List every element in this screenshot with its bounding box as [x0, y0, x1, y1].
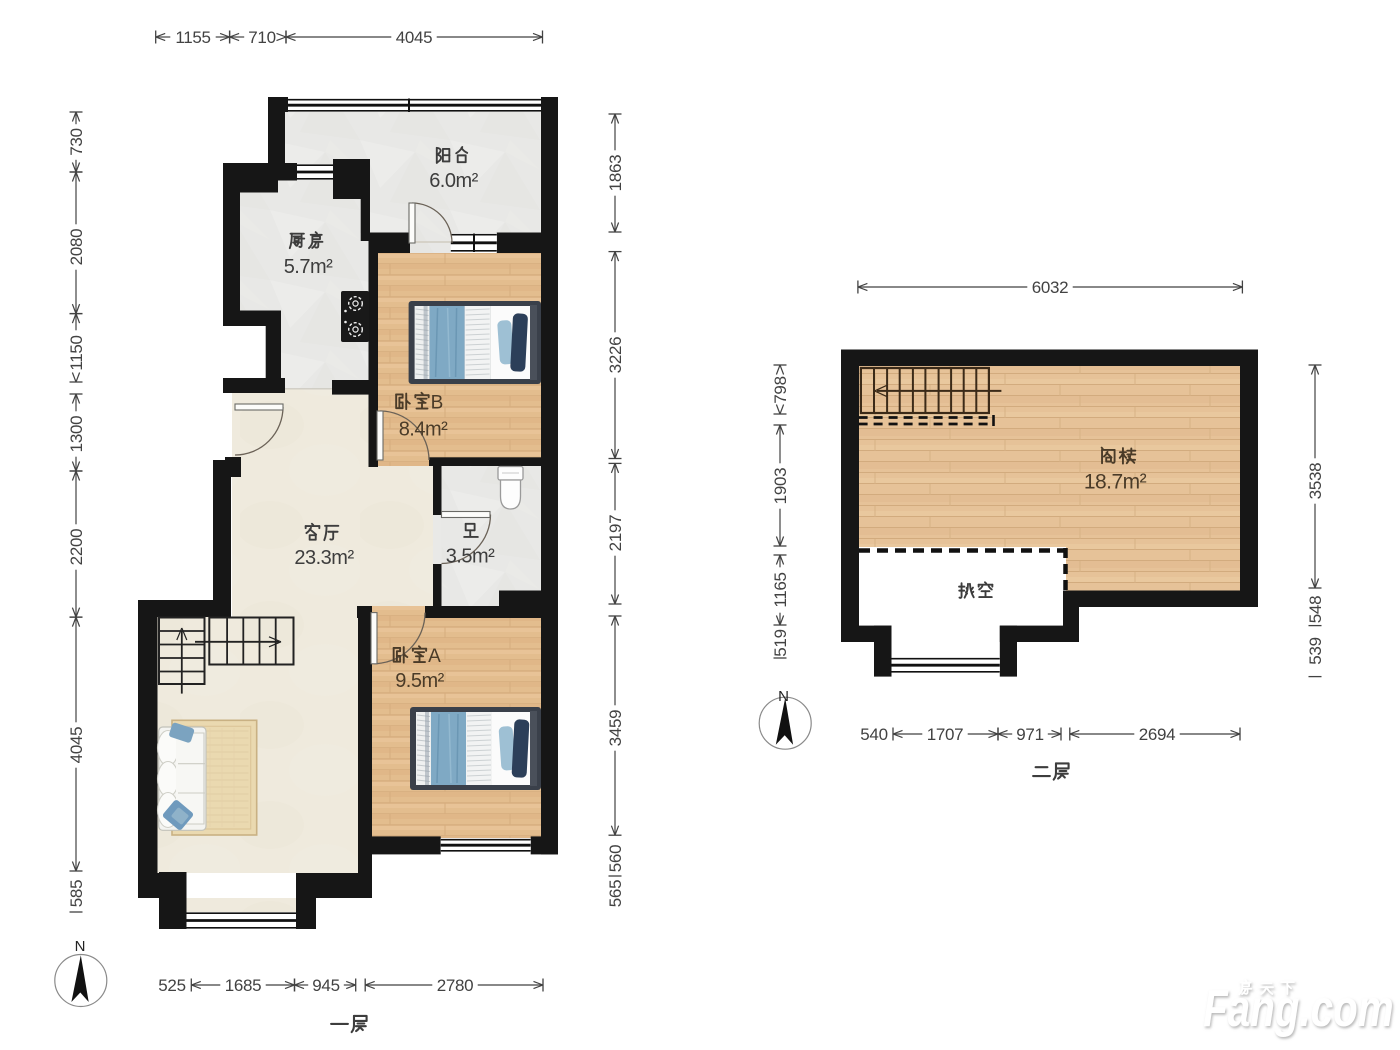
- svg-text:710: 710: [248, 28, 275, 47]
- svg-text:1150: 1150: [67, 335, 86, 370]
- svg-text:3538: 3538: [1306, 463, 1325, 500]
- svg-text:2197: 2197: [606, 515, 625, 552]
- svg-text:539: 539: [1306, 637, 1325, 664]
- svg-text:N: N: [778, 688, 789, 705]
- svg-text:18.7m²: 18.7m²: [1084, 471, 1147, 494]
- svg-text:2694: 2694: [1139, 725, 1176, 744]
- svg-text:6.0m²: 6.0m²: [429, 170, 478, 192]
- svg-text:1903: 1903: [771, 468, 790, 505]
- svg-text:N: N: [75, 938, 86, 955]
- svg-text:9.5m²: 9.5m²: [395, 670, 444, 692]
- svg-text:4045: 4045: [396, 28, 433, 47]
- svg-text:8.4m²: 8.4m²: [399, 419, 448, 441]
- svg-text:2200: 2200: [67, 529, 86, 566]
- svg-text:5.7m²: 5.7m²: [284, 256, 333, 278]
- svg-text:971: 971: [1016, 725, 1043, 744]
- svg-text:1863: 1863: [606, 155, 625, 192]
- svg-text:585: 585: [67, 880, 86, 907]
- svg-text:798: 798: [771, 376, 790, 403]
- svg-text:525: 525: [158, 976, 185, 995]
- svg-text:560: 560: [606, 845, 625, 872]
- svg-text:945: 945: [312, 976, 339, 995]
- svg-text:A: A: [428, 646, 441, 667]
- svg-text:1707: 1707: [927, 725, 964, 744]
- svg-text:548: 548: [1306, 596, 1325, 623]
- svg-text:540: 540: [860, 725, 887, 744]
- svg-text:3459: 3459: [606, 710, 625, 747]
- svg-text:B: B: [431, 393, 444, 414]
- svg-text:565: 565: [606, 880, 625, 907]
- svg-text:Fang.com: Fang.com: [1203, 979, 1393, 1037]
- svg-text:2080: 2080: [67, 229, 86, 266]
- svg-text:4045: 4045: [67, 727, 86, 764]
- svg-text:730: 730: [67, 128, 86, 155]
- svg-text:6032: 6032: [1032, 278, 1069, 297]
- svg-text:2780: 2780: [437, 976, 474, 995]
- svg-text:1685: 1685: [225, 976, 262, 995]
- svg-text:1155: 1155: [175, 28, 210, 47]
- svg-text:3226: 3226: [606, 337, 625, 374]
- svg-text:1300: 1300: [67, 416, 86, 453]
- svg-text:519: 519: [771, 629, 790, 656]
- svg-text:3.5m²: 3.5m²: [446, 546, 495, 568]
- svg-text:1165: 1165: [771, 572, 790, 607]
- svg-text:23.3m²: 23.3m²: [294, 547, 354, 569]
